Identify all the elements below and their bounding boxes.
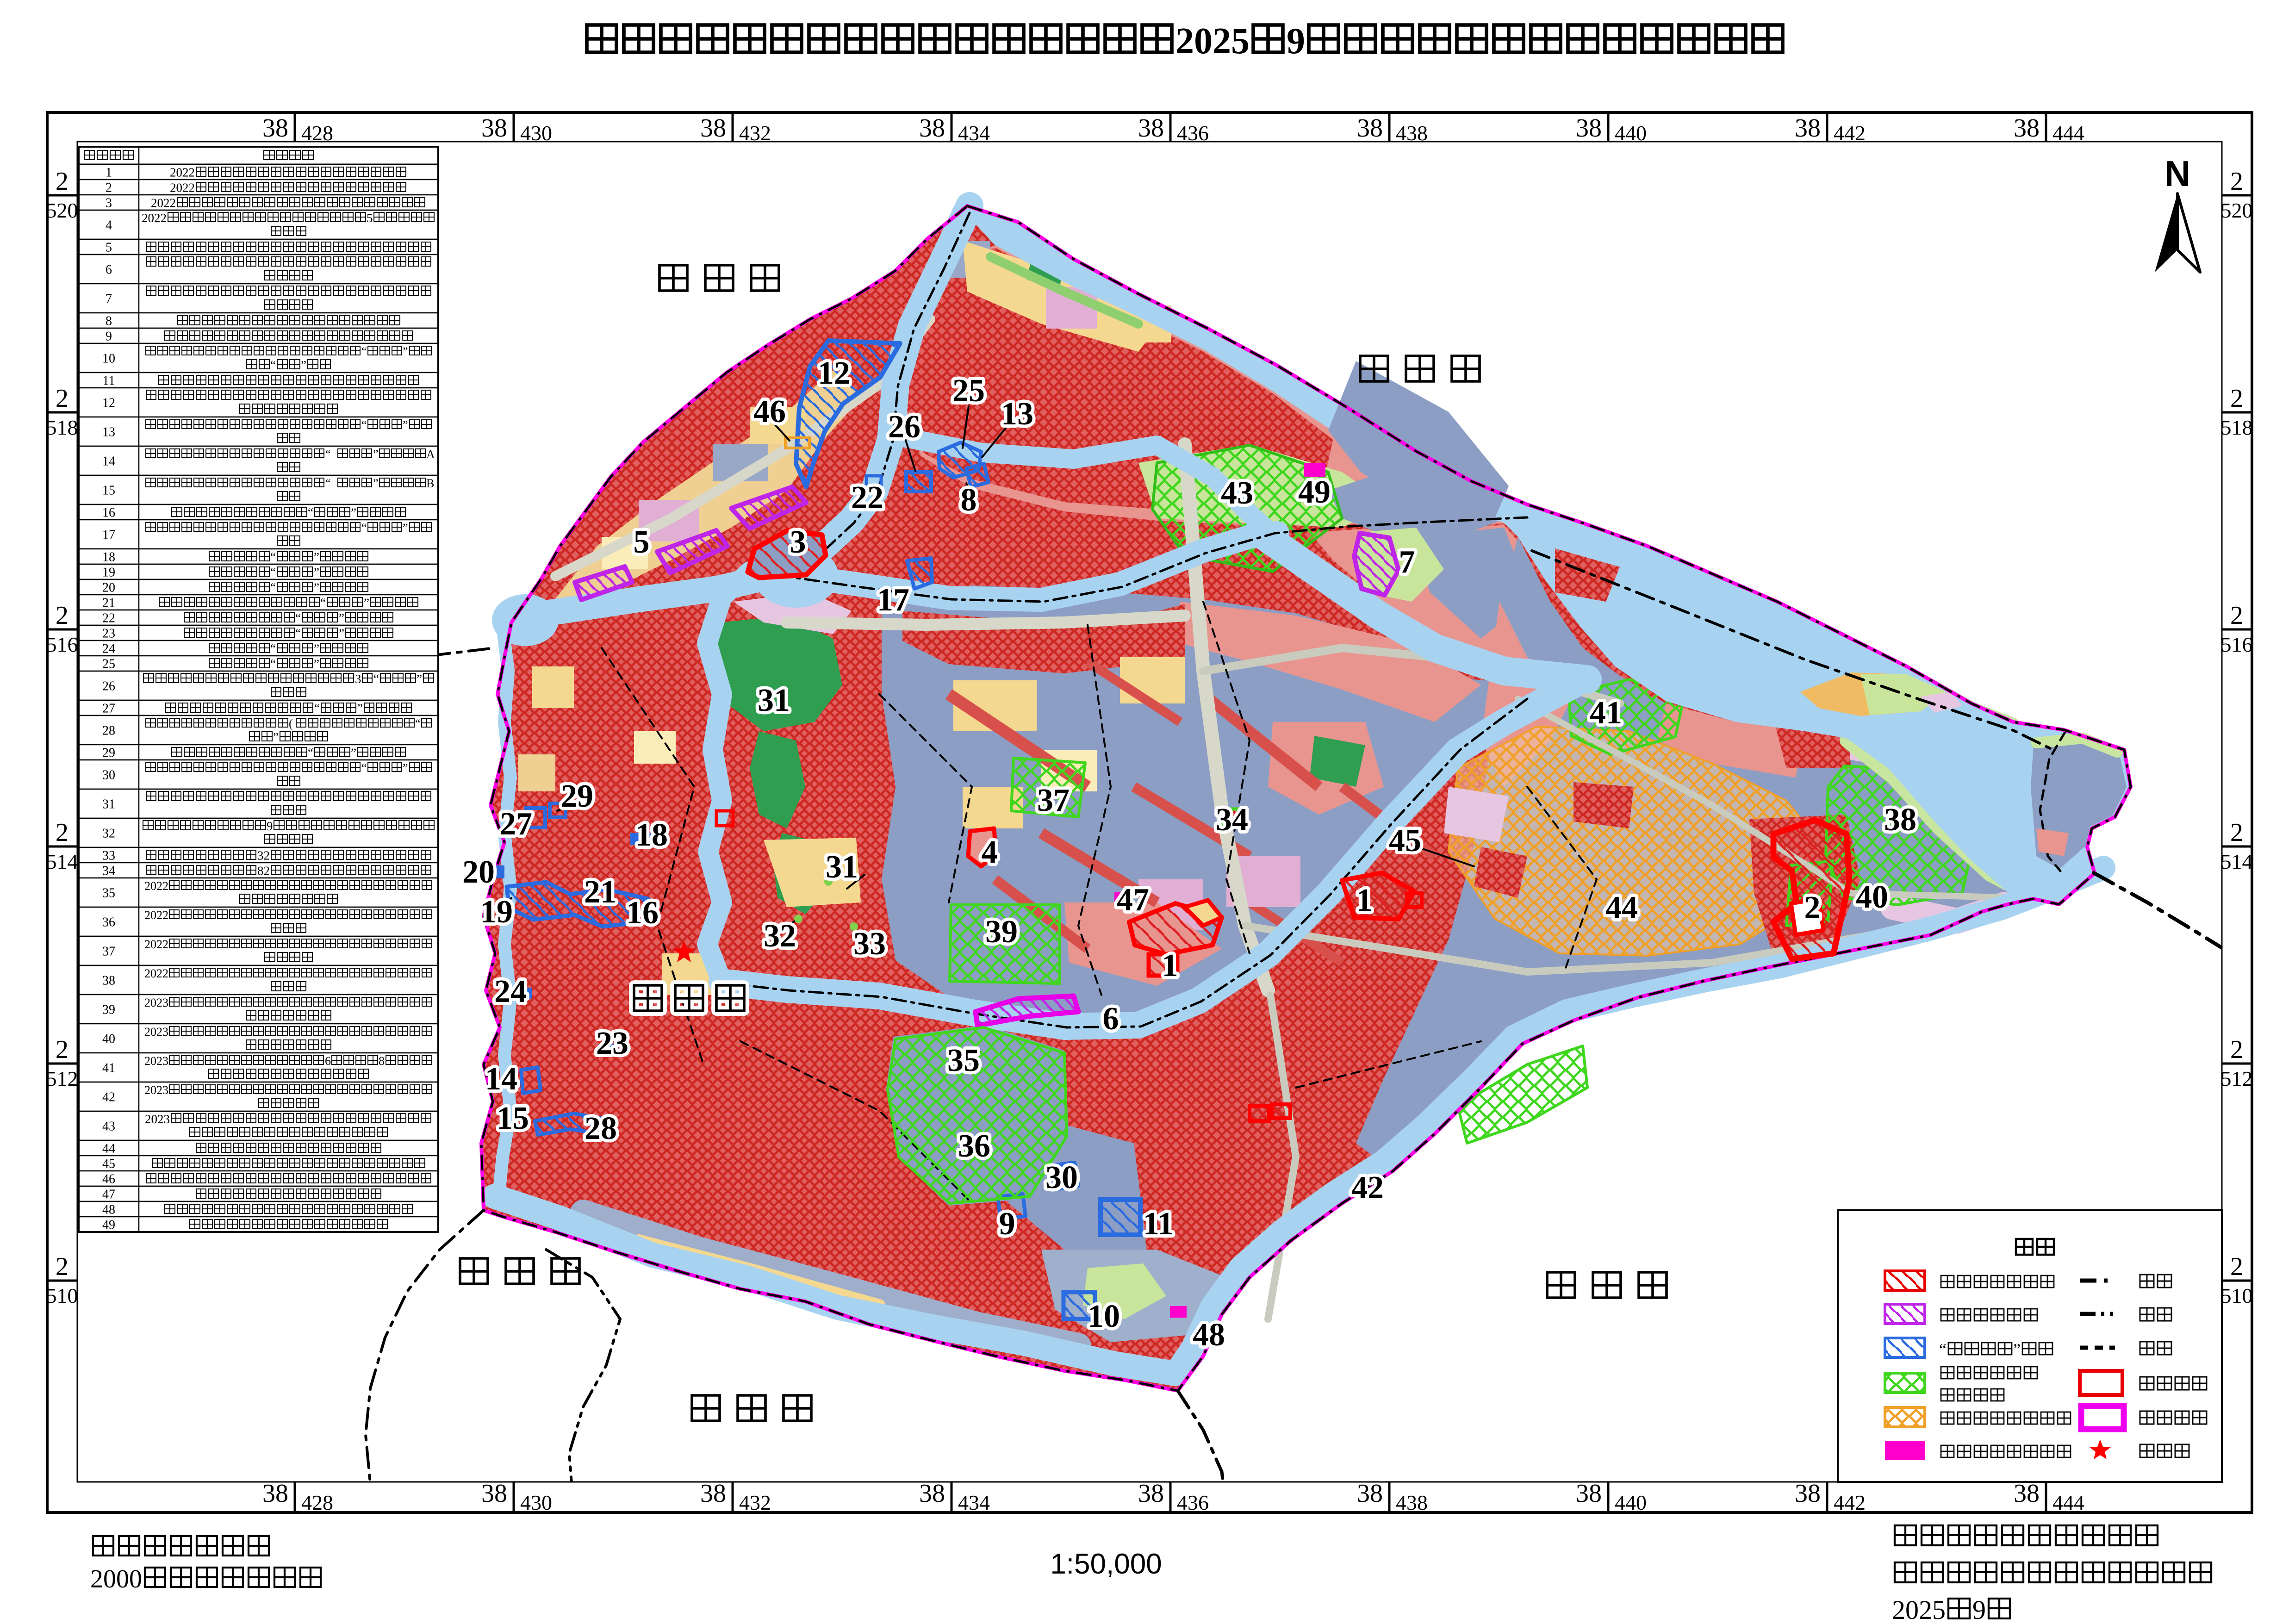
svg-text:21: 21 <box>102 596 115 610</box>
svg-text:2023: 2023 <box>144 1025 168 1039</box>
svg-text:31: 31 <box>758 683 790 718</box>
svg-text:“: “ <box>314 702 320 716</box>
svg-text:38: 38 <box>102 974 115 988</box>
svg-text:“: “ <box>270 566 276 579</box>
svg-text:22: 22 <box>102 611 115 626</box>
svg-text:2000: 2000 <box>90 1565 142 1593</box>
svg-text:510: 510 <box>2221 1284 2253 1307</box>
svg-text:36: 36 <box>102 915 115 930</box>
svg-text:41: 41 <box>102 1061 115 1076</box>
svg-text:11: 11 <box>1143 1206 1174 1242</box>
svg-text:34: 34 <box>1216 802 1248 838</box>
svg-text:33: 33 <box>853 926 886 962</box>
svg-text:45: 45 <box>102 1157 115 1171</box>
svg-text:38: 38 <box>1576 1479 1602 1508</box>
svg-text:”: ” <box>339 611 344 625</box>
svg-text:2022: 2022 <box>144 938 168 951</box>
svg-text:44: 44 <box>102 1142 115 1156</box>
svg-text:“: “ <box>295 627 301 641</box>
svg-text:2022: 2022 <box>144 908 168 922</box>
svg-text:43: 43 <box>102 1120 115 1134</box>
svg-text:24: 24 <box>102 642 115 656</box>
svg-text:2: 2 <box>56 1035 68 1064</box>
svg-text:8: 8 <box>379 1054 385 1068</box>
svg-text:17: 17 <box>102 528 115 542</box>
svg-text:31: 31 <box>102 797 115 812</box>
svg-text:”: ” <box>403 418 408 432</box>
svg-text:432: 432 <box>739 1491 771 1514</box>
svg-text:512: 512 <box>2221 1067 2253 1090</box>
svg-text:39: 39 <box>102 1003 115 1017</box>
svg-text:520: 520 <box>46 199 78 222</box>
svg-text:434: 434 <box>958 1491 990 1514</box>
svg-text:5: 5 <box>367 211 373 225</box>
svg-text:“: “ <box>270 642 276 656</box>
svg-text:6: 6 <box>106 263 112 277</box>
svg-text:38: 38 <box>1795 1479 1821 1508</box>
svg-text:23: 23 <box>596 1026 628 1061</box>
svg-text:”: ” <box>351 506 356 520</box>
svg-text:”: ” <box>403 345 408 358</box>
svg-text:12: 12 <box>818 355 850 391</box>
svg-text:2022: 2022 <box>144 967 168 980</box>
svg-text:444: 444 <box>2052 1491 2084 1514</box>
svg-text:430: 430 <box>520 121 552 145</box>
svg-text:38: 38 <box>919 1479 945 1508</box>
svg-text:”: ” <box>301 358 306 372</box>
svg-text:20: 20 <box>102 581 115 595</box>
svg-text:37: 37 <box>102 945 115 959</box>
svg-text:48: 48 <box>1193 1317 1225 1353</box>
svg-text:47: 47 <box>102 1188 115 1202</box>
svg-text:2022: 2022 <box>142 211 167 225</box>
svg-text:17: 17 <box>877 582 909 618</box>
svg-text:432: 432 <box>739 121 771 145</box>
svg-text:38: 38 <box>1576 114 1602 143</box>
svg-text:9: 9 <box>1972 1595 1986 1624</box>
svg-text:9: 9 <box>1287 21 1305 62</box>
svg-text:2: 2 <box>2230 601 2243 630</box>
svg-text:19: 19 <box>480 894 513 930</box>
svg-text:16: 16 <box>102 506 115 520</box>
svg-text:2: 2 <box>2230 1035 2243 1064</box>
svg-text:14: 14 <box>485 1061 517 1097</box>
svg-text:34: 34 <box>102 864 115 878</box>
svg-text:40: 40 <box>1856 879 1888 915</box>
svg-text:2023: 2023 <box>144 996 168 1009</box>
svg-text:”: ” <box>273 730 279 744</box>
svg-text:2025: 2025 <box>1175 21 1250 62</box>
svg-text:9: 9 <box>106 330 112 344</box>
svg-text:2025: 2025 <box>1892 1595 1946 1624</box>
svg-text:430: 430 <box>520 1491 552 1514</box>
svg-text:23: 23 <box>102 627 115 641</box>
svg-text:11: 11 <box>103 374 115 388</box>
svg-text:25: 25 <box>102 657 115 672</box>
svg-text:38: 38 <box>919 114 945 143</box>
svg-text:46: 46 <box>753 394 786 429</box>
svg-text:“: “ <box>308 506 313 520</box>
svg-text:37: 37 <box>1037 783 1070 818</box>
svg-text:444: 444 <box>2052 121 2084 145</box>
svg-text:2022: 2022 <box>170 166 195 180</box>
svg-text:49: 49 <box>102 1218 115 1232</box>
svg-text:40: 40 <box>102 1032 115 1046</box>
svg-text:2023: 2023 <box>144 1083 168 1097</box>
svg-text:”: ” <box>314 550 319 564</box>
svg-text:2: 2 <box>2230 167 2243 196</box>
svg-text:438: 438 <box>1396 1491 1428 1514</box>
svg-text:4: 4 <box>106 218 112 233</box>
svg-text:516: 516 <box>46 633 78 656</box>
svg-text:”: ” <box>417 672 422 686</box>
svg-text:”: ” <box>314 642 319 656</box>
svg-text:32: 32 <box>102 827 115 841</box>
svg-text:2: 2 <box>2230 384 2243 413</box>
svg-text:16: 16 <box>626 895 659 931</box>
svg-text:436: 436 <box>1177 121 1209 145</box>
svg-text:“: “ <box>325 477 331 490</box>
svg-text:28: 28 <box>102 724 115 738</box>
svg-text:6: 6 <box>1103 1001 1119 1037</box>
svg-text:27: 27 <box>102 702 115 716</box>
svg-text:18: 18 <box>102 550 115 565</box>
svg-text:45: 45 <box>1389 823 1421 859</box>
svg-text:38: 38 <box>481 1479 507 1508</box>
svg-text:5: 5 <box>634 524 650 560</box>
svg-text:15: 15 <box>497 1101 529 1136</box>
svg-text:38: 38 <box>1795 114 1821 143</box>
svg-text:“: “ <box>270 358 276 372</box>
svg-text:518: 518 <box>46 416 78 439</box>
svg-text:42: 42 <box>102 1090 115 1105</box>
svg-text:29: 29 <box>561 778 593 814</box>
svg-text:49: 49 <box>1298 474 1331 510</box>
svg-text:1: 1 <box>1356 883 1373 918</box>
svg-text:514: 514 <box>46 850 78 873</box>
svg-text:”: ” <box>351 746 356 760</box>
svg-text:516: 516 <box>2221 633 2253 656</box>
svg-text:38: 38 <box>1357 1479 1383 1508</box>
svg-text:48: 48 <box>102 1203 115 1217</box>
svg-text:32: 32 <box>764 918 796 954</box>
svg-text:7: 7 <box>1399 544 1415 580</box>
svg-text:2: 2 <box>106 181 112 195</box>
svg-text:“: “ <box>325 448 331 461</box>
svg-text:434: 434 <box>958 121 990 145</box>
svg-text:2: 2 <box>56 167 68 196</box>
svg-text:82: 82 <box>257 864 270 878</box>
svg-text:38: 38 <box>262 1479 288 1508</box>
svg-text:38: 38 <box>2014 1479 2040 1508</box>
svg-text:42: 42 <box>1351 1170 1384 1206</box>
svg-text:38: 38 <box>700 114 726 143</box>
svg-text:N: N <box>2164 153 2190 194</box>
svg-text:33: 33 <box>102 849 115 863</box>
svg-text:26: 26 <box>102 679 115 694</box>
svg-text:30: 30 <box>1045 1160 1078 1195</box>
svg-text:“: “ <box>308 746 313 760</box>
svg-text:6: 6 <box>325 1054 331 1068</box>
svg-text:31: 31 <box>826 849 858 885</box>
svg-text:2023: 2023 <box>144 1054 168 1068</box>
svg-text:12: 12 <box>102 396 115 411</box>
svg-text:18: 18 <box>635 817 668 853</box>
svg-text:512: 512 <box>46 1067 78 1090</box>
svg-text:”: ” <box>373 477 379 490</box>
svg-text:”: ” <box>314 657 319 671</box>
svg-text:518: 518 <box>2221 416 2253 439</box>
svg-text:38: 38 <box>1884 802 1916 838</box>
svg-text:”: ” <box>339 627 344 641</box>
svg-text:38: 38 <box>1138 1479 1164 1508</box>
svg-text:13: 13 <box>1001 396 1033 432</box>
svg-text:“: “ <box>361 761 367 775</box>
svg-text:438: 438 <box>1396 121 1428 145</box>
svg-text:“: “ <box>320 596 326 610</box>
svg-text:46: 46 <box>102 1172 115 1187</box>
svg-text:2: 2 <box>2230 1252 2243 1281</box>
svg-text:440: 440 <box>1615 121 1647 145</box>
svg-text:38: 38 <box>2014 114 2040 143</box>
svg-text:35: 35 <box>947 1043 980 1078</box>
svg-text:”: ” <box>2013 1340 2021 1359</box>
svg-text:“: “ <box>361 345 367 358</box>
svg-text:“: “ <box>361 418 367 432</box>
svg-text:2: 2 <box>1804 890 1821 926</box>
svg-text:10: 10 <box>1088 1299 1120 1334</box>
svg-text:440: 440 <box>1615 1491 1647 1514</box>
svg-text:32: 32 <box>257 849 270 863</box>
svg-text:2022: 2022 <box>144 879 168 893</box>
svg-text:(: ( <box>289 717 293 730</box>
svg-text:436: 436 <box>1177 1491 1209 1514</box>
svg-text:30: 30 <box>102 768 115 783</box>
svg-text:38: 38 <box>481 114 507 143</box>
svg-text:B: B <box>426 477 434 490</box>
svg-text:2: 2 <box>2230 818 2243 847</box>
svg-text:13: 13 <box>102 425 115 440</box>
svg-text:1: 1 <box>106 166 112 180</box>
svg-text:15: 15 <box>102 484 115 498</box>
svg-text:27: 27 <box>500 806 532 842</box>
svg-text:”: ” <box>357 702 363 716</box>
svg-text:“: “ <box>373 672 379 686</box>
svg-text:9: 9 <box>999 1206 1015 1242</box>
svg-text:8: 8 <box>961 482 977 518</box>
svg-text:38: 38 <box>262 114 288 143</box>
svg-text:442: 442 <box>1834 1491 1866 1514</box>
svg-text:“: “ <box>270 581 276 595</box>
svg-text:2: 2 <box>56 384 68 413</box>
svg-text:2023: 2023 <box>145 1112 170 1126</box>
svg-text:“: “ <box>270 657 276 671</box>
svg-text:24: 24 <box>494 974 527 1009</box>
svg-text:47: 47 <box>1117 882 1149 918</box>
svg-text:“: “ <box>1939 1340 1947 1359</box>
svg-text:7: 7 <box>106 292 112 306</box>
svg-text:29: 29 <box>102 746 115 760</box>
svg-text:38: 38 <box>1357 114 1383 143</box>
svg-text:43: 43 <box>1221 475 1253 511</box>
svg-text:3: 3 <box>790 524 806 560</box>
svg-text:1: 1 <box>1162 948 1178 983</box>
svg-text:5: 5 <box>106 241 112 255</box>
svg-text:38: 38 <box>700 1479 726 1508</box>
svg-text:2022: 2022 <box>170 181 195 195</box>
svg-text:38: 38 <box>1138 114 1164 143</box>
svg-text:19: 19 <box>102 566 115 580</box>
svg-text:428: 428 <box>301 1491 333 1514</box>
svg-text:510: 510 <box>46 1284 78 1307</box>
svg-text:1:50,000: 1:50,000 <box>1050 1548 1162 1580</box>
svg-text:2: 2 <box>56 601 68 630</box>
svg-text:26: 26 <box>888 409 920 445</box>
svg-text:41: 41 <box>1590 695 1622 731</box>
svg-text:520: 520 <box>2221 199 2253 222</box>
svg-text:”: ” <box>403 761 408 775</box>
svg-text:22: 22 <box>851 480 883 516</box>
svg-text:”: ” <box>364 596 369 610</box>
svg-text:36: 36 <box>958 1128 990 1164</box>
svg-text:”: ” <box>314 581 319 595</box>
svg-text:“: “ <box>361 521 367 535</box>
svg-text:442: 442 <box>1834 121 1866 145</box>
svg-text:4: 4 <box>982 834 998 870</box>
svg-text:3: 3 <box>106 196 112 211</box>
svg-text:44: 44 <box>1605 890 1638 926</box>
svg-text:2: 2 <box>56 818 68 847</box>
svg-text:8: 8 <box>106 314 112 329</box>
svg-text:2: 2 <box>56 1252 68 1281</box>
svg-text:“: “ <box>270 550 276 564</box>
svg-text:10: 10 <box>102 352 115 366</box>
svg-text:A: A <box>426 448 435 461</box>
svg-text:“: “ <box>295 611 301 625</box>
svg-text:25: 25 <box>952 373 985 409</box>
svg-text:39: 39 <box>985 914 1018 950</box>
svg-text:”: ” <box>403 521 408 535</box>
svg-text:20: 20 <box>462 854 495 890</box>
svg-text:”: ” <box>373 448 379 461</box>
svg-text:21: 21 <box>584 874 616 910</box>
svg-text:2022: 2022 <box>151 196 176 210</box>
svg-text:9: 9 <box>267 819 273 833</box>
svg-text:428: 428 <box>301 121 333 145</box>
svg-text:28: 28 <box>585 1111 617 1146</box>
svg-text:3: 3 <box>355 672 361 686</box>
svg-text:514: 514 <box>2221 850 2253 873</box>
svg-text:“: “ <box>415 717 421 730</box>
svg-text:”: ” <box>314 566 319 579</box>
svg-text:14: 14 <box>102 454 115 469</box>
svg-text:35: 35 <box>102 886 115 901</box>
